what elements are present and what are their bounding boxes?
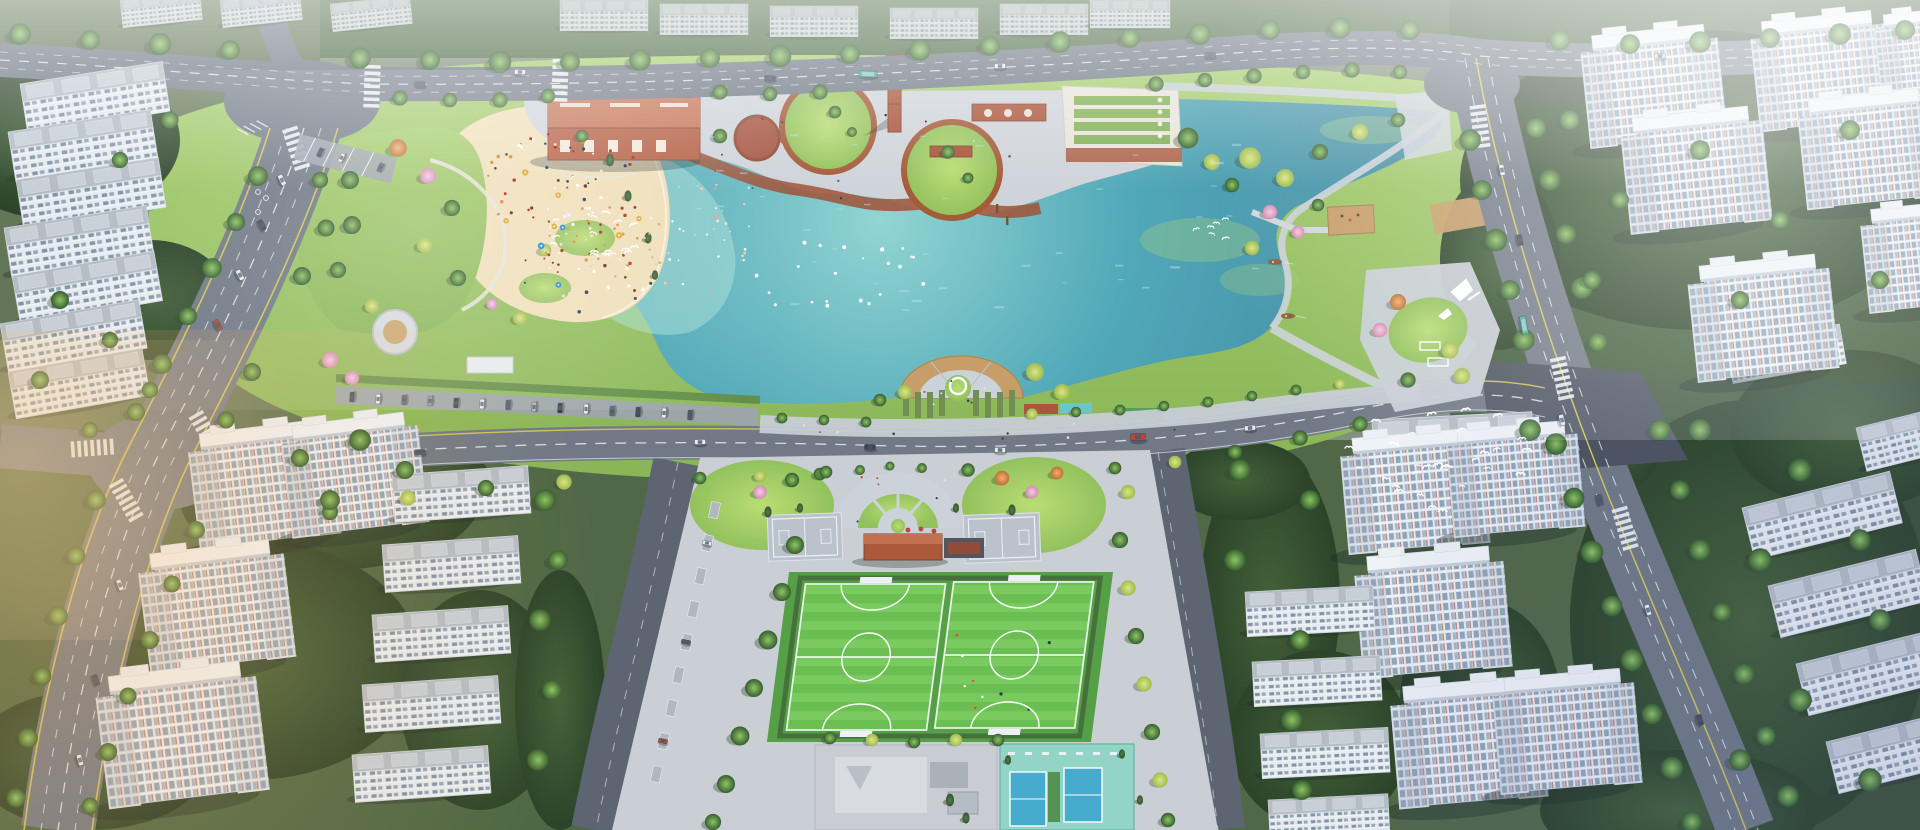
aerial-rendering-stage [0,0,1920,830]
atmosphere-haze [0,0,1920,830]
masterplan-rendering [0,0,1920,830]
